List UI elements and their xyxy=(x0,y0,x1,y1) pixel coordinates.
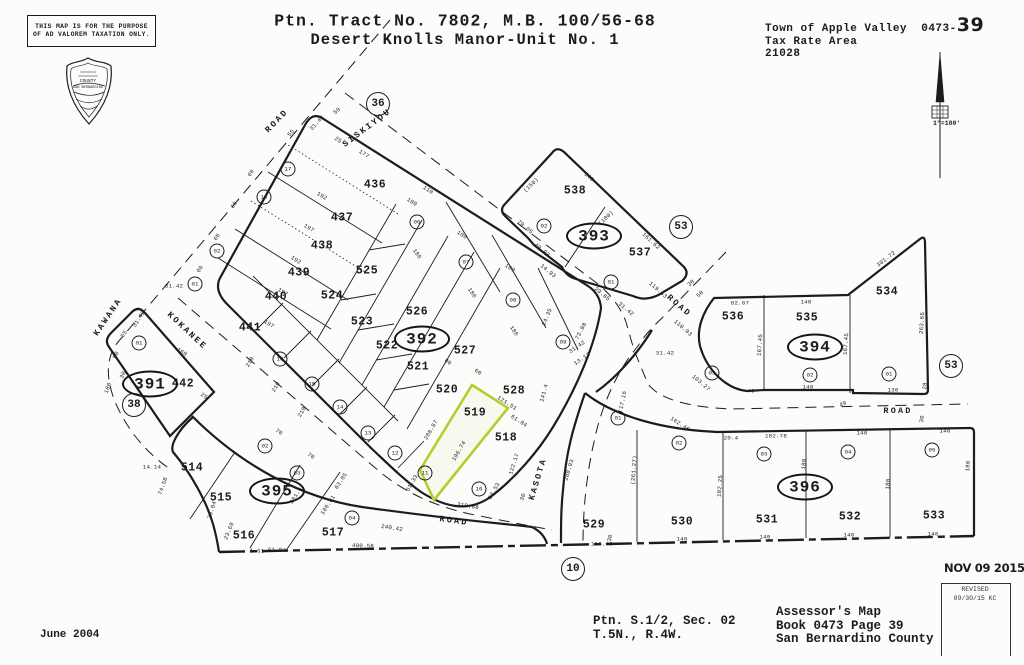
dimension-label: 102.78 xyxy=(765,433,787,440)
lot-number-circle: 02 xyxy=(672,436,687,451)
block-number-ellipse: 394 xyxy=(787,334,843,361)
dimension-label: 301.72 xyxy=(875,249,897,268)
dimension-label: 74.58 xyxy=(157,476,170,496)
parcel-number-437: 437 xyxy=(331,212,353,225)
lot-number-circle: 16 xyxy=(273,352,288,367)
dimension-label: 240.42 xyxy=(381,523,404,533)
dimension-label: 100 xyxy=(405,196,418,208)
lot-number-circle: 01 xyxy=(188,277,203,292)
dimension-label: 180 xyxy=(800,458,808,470)
dimension-label: 160 xyxy=(175,346,188,358)
dimension-label: 30 xyxy=(686,278,696,288)
parcel-number-534: 534 xyxy=(876,286,898,299)
parcel-number-518: 518 xyxy=(495,432,517,445)
dimension-label: 61.04 xyxy=(509,413,528,429)
dimension-label: 180 xyxy=(466,286,478,299)
dimension-label: 122.17 xyxy=(507,452,520,475)
parcel-number-514: 514 xyxy=(181,462,203,475)
dimension-label: 140 xyxy=(802,384,813,391)
dimension-label: 180.81 xyxy=(319,494,337,516)
dimension-label: 162.46 xyxy=(669,415,691,433)
road-name-label: KOKANEE xyxy=(165,310,209,352)
dimension-label: 140 xyxy=(759,534,770,541)
lot-number-circle: 10 xyxy=(472,482,487,497)
dimension-label: 197 xyxy=(262,318,275,330)
section-line1: Ptn. S.1/2, Sec. 02 xyxy=(593,614,736,628)
dimension-label: 182.25 xyxy=(716,475,725,498)
dimension-label: 50 xyxy=(332,106,342,116)
dimension-label: 140 xyxy=(927,531,938,538)
dimension-label: (261.27) xyxy=(629,455,638,485)
dimension-label: 100 xyxy=(503,262,516,274)
lot-number-circle: 01 xyxy=(882,367,897,382)
parcel-number-533: 533 xyxy=(923,510,945,523)
lot-number-circle: 18 xyxy=(257,190,272,205)
lot-number-circle: 03 xyxy=(705,366,720,381)
lot-number-circle: 03 xyxy=(757,447,772,462)
dimension-label: 55 xyxy=(286,128,296,138)
lot-number-circle: 03 xyxy=(290,466,305,481)
lot-number-circle: 01 xyxy=(132,336,147,351)
block-number-ellipse: 391 xyxy=(122,371,178,398)
dimension-label: 130 xyxy=(887,387,898,394)
dimension-label: 40.93 xyxy=(533,241,552,258)
lot-number-circle: 11 xyxy=(418,466,433,481)
dimension-label: 31.42 xyxy=(308,114,326,132)
dimension-label: 192 xyxy=(289,254,302,266)
dimension-label: 208.87 xyxy=(422,419,439,442)
dimension-label: 210 xyxy=(270,380,282,393)
dimension-label: 61.33 xyxy=(404,473,419,492)
road-name-label: ROAD xyxy=(883,406,912,416)
dimension-label: 70 xyxy=(306,451,316,461)
dimension-label: 60 xyxy=(212,232,222,242)
parcel-number-521: 521 xyxy=(407,361,429,374)
lot-number-circle: 04 xyxy=(345,511,360,526)
lot-number-circle: 05 xyxy=(925,443,940,458)
assessor-block: Assessor's Map Book 0473 Page 39 San Ber… xyxy=(776,606,934,647)
dimension-label: 100 xyxy=(455,229,468,241)
parcel-number-520: 520 xyxy=(436,384,458,397)
dimension-label: 40 xyxy=(747,388,754,395)
dimension-label: 119.63 xyxy=(647,280,668,300)
dimension-label: 50 xyxy=(111,350,120,360)
lot-number-circle: 02 xyxy=(258,439,273,454)
dimension-label: 180 xyxy=(411,247,423,260)
road-name-label: ROAD xyxy=(665,293,694,320)
lot-number-circle: 14 xyxy=(333,400,348,415)
dimension-label: 180 xyxy=(508,324,520,337)
dimension-label: 167.45 xyxy=(756,334,765,357)
dimension-label: 80 xyxy=(443,357,453,367)
dimension-label: 14.93 xyxy=(539,262,558,279)
dimension-label: 192 xyxy=(315,190,328,202)
dimension-label: 140 xyxy=(939,428,950,435)
dimension-label: 167.45 xyxy=(842,333,851,356)
dimension-label: 110.03 xyxy=(672,318,693,338)
dimension-label: 60 xyxy=(229,200,239,210)
dimension-label: 79.05 xyxy=(516,218,535,235)
parcel-number-537: 537 xyxy=(629,247,651,260)
block-number-ellipse: 396 xyxy=(777,474,833,501)
dimension-label: 20.4 xyxy=(724,435,739,442)
dimension-label: 140 xyxy=(856,430,867,437)
parcel-number-517: 517 xyxy=(322,527,344,540)
dimension-label: 17.16 xyxy=(618,390,629,409)
dimension-label: 13.12 xyxy=(572,351,591,367)
parcel-number-436: 436 xyxy=(364,179,386,192)
parcel-number-516: 516 xyxy=(233,530,255,543)
dimension-label: 30 xyxy=(518,492,527,501)
dimension-label: 210 xyxy=(244,355,256,368)
parcel-number-528: 528 xyxy=(503,385,525,398)
dimension-label: 180 xyxy=(103,382,113,395)
dimension-label: 49 xyxy=(838,399,848,408)
dimension-label: 30 xyxy=(918,415,926,423)
dimension-label: 288.93 xyxy=(562,458,575,481)
revised-value: 09/30/15 KC xyxy=(954,595,997,602)
parcel-number-441: 441 xyxy=(239,322,261,335)
lot-number-circle: 17 xyxy=(281,162,296,177)
parcel-number-523: 523 xyxy=(351,316,373,329)
parcel-number-531: 531 xyxy=(756,514,778,527)
parcel-number-526: 526 xyxy=(406,306,428,319)
dimension-label: 140 xyxy=(843,532,854,539)
dimension-label: 73.88 xyxy=(574,321,589,341)
dimension-label: 197 xyxy=(302,222,315,234)
dimension-label: 110 xyxy=(421,184,434,196)
road-name-label: KASOTA xyxy=(527,457,549,502)
map-labels-layer: 4364374384394404414425255245235225215205… xyxy=(0,0,1024,665)
parcel-number-439: 439 xyxy=(288,267,310,280)
parcel-number-529: 529 xyxy=(583,519,605,532)
parcel-number-532: 532 xyxy=(839,511,861,524)
assessor-line2: Book 0473 Page 39 xyxy=(776,620,934,634)
dimension-label: (150) xyxy=(522,176,540,194)
lot-number-circle: 02 xyxy=(537,219,552,234)
revised-label: REVISED xyxy=(961,586,988,593)
dimension-label: 55 xyxy=(119,329,129,339)
assessor-line1: Assessor's Map xyxy=(776,606,934,620)
dimension-label: 140 xyxy=(583,171,596,184)
parcel-number-538: 538 xyxy=(564,185,586,198)
date-stamp: NOV 09 2015 xyxy=(944,561,1024,575)
dimension-label: 310.88 xyxy=(457,501,480,511)
dimension-label: 23.53 xyxy=(486,481,501,500)
dimension-label: 82.67 xyxy=(731,300,749,307)
dimension-label: 60 xyxy=(473,367,483,377)
revision-box xyxy=(941,583,1011,656)
lot-number-circle: 15 xyxy=(305,377,320,392)
lot-number-circle: 07 xyxy=(459,255,474,270)
road-name-label: ROAD xyxy=(439,514,469,528)
lot-number-circle: 01 xyxy=(611,411,626,426)
dimension-label: 140 xyxy=(800,299,811,306)
dimension-label: 31.42 xyxy=(617,300,636,317)
dimension-label: 180 xyxy=(964,460,972,472)
dimension-label: 1.61 xyxy=(250,547,265,555)
dimension-label: 60 xyxy=(246,168,256,178)
dimension-label: 50 xyxy=(695,289,705,299)
lot-number-circle: 04 xyxy=(841,445,856,460)
section-line2: T.5N., R.4W. xyxy=(593,628,683,642)
dimension-label: 70 xyxy=(274,427,284,437)
dimension-label: 141.4 xyxy=(538,383,550,403)
dimension-label: 196.74 xyxy=(450,440,467,463)
block-number-ellipse: 393 xyxy=(566,223,622,250)
dimension-label: 180 xyxy=(884,478,892,490)
dimension-label: 61.84 xyxy=(268,546,287,554)
assessor-map-page: COUNTY SAN BERNARDINO THIS MAP IS FOR TH… xyxy=(0,0,1024,665)
parcel-number-525: 525 xyxy=(356,265,378,278)
dimension-label: 400.58 xyxy=(352,542,374,550)
lot-number-circle: 01 xyxy=(604,275,619,290)
parcel-number-527: 527 xyxy=(454,345,476,358)
dimension-label: 210 xyxy=(296,405,308,418)
parcel-number-524: 524 xyxy=(321,290,343,303)
lot-number-circle: 06 xyxy=(410,215,425,230)
dimension-label: 177 xyxy=(357,148,370,160)
dimension-label: 28 xyxy=(921,382,928,390)
dimension-label: 60 xyxy=(195,264,205,274)
road-name-label: KAWANA xyxy=(92,296,125,338)
dimension-label: 31.42 xyxy=(131,309,147,328)
dimension-label: 63.05 xyxy=(333,471,349,490)
parcel-number-519[interactable]: 519 xyxy=(464,407,486,420)
parcel-number-536: 536 xyxy=(722,311,744,324)
dimension-label: 20.04 xyxy=(206,500,218,520)
dimension-label: 31.42 xyxy=(656,350,674,357)
reference-circle: 10 xyxy=(561,557,585,581)
dimension-label: 263.65 xyxy=(918,312,927,335)
reference-circle: 53 xyxy=(669,215,693,239)
lot-number-circle: 02 xyxy=(803,368,818,383)
dimension-label: 24.35 xyxy=(540,307,553,327)
road-name-label: SISKIYOU xyxy=(341,106,394,149)
map-date: June 2004 xyxy=(40,629,99,641)
block-number-ellipse: 392 xyxy=(394,326,450,353)
reference-circle: 53 xyxy=(939,354,963,378)
parcel-number-438: 438 xyxy=(311,240,333,253)
dimension-label: 25 xyxy=(199,391,209,401)
lot-number-circle: 13 xyxy=(361,426,376,441)
dimension-label: 14.14 xyxy=(143,464,161,471)
assessor-line3: San Bernardino County xyxy=(776,633,934,647)
lot-number-circle: 12 xyxy=(388,446,403,461)
dimension-label: 30 xyxy=(606,534,614,543)
dimension-label: 140 xyxy=(676,536,687,543)
lot-number-circle: 02 xyxy=(210,244,225,259)
dimension-label: 31.42 xyxy=(165,283,183,290)
parcel-number-530: 530 xyxy=(671,516,693,529)
parcel-number-535: 535 xyxy=(796,312,818,325)
lot-number-circle: 08 xyxy=(506,293,521,308)
